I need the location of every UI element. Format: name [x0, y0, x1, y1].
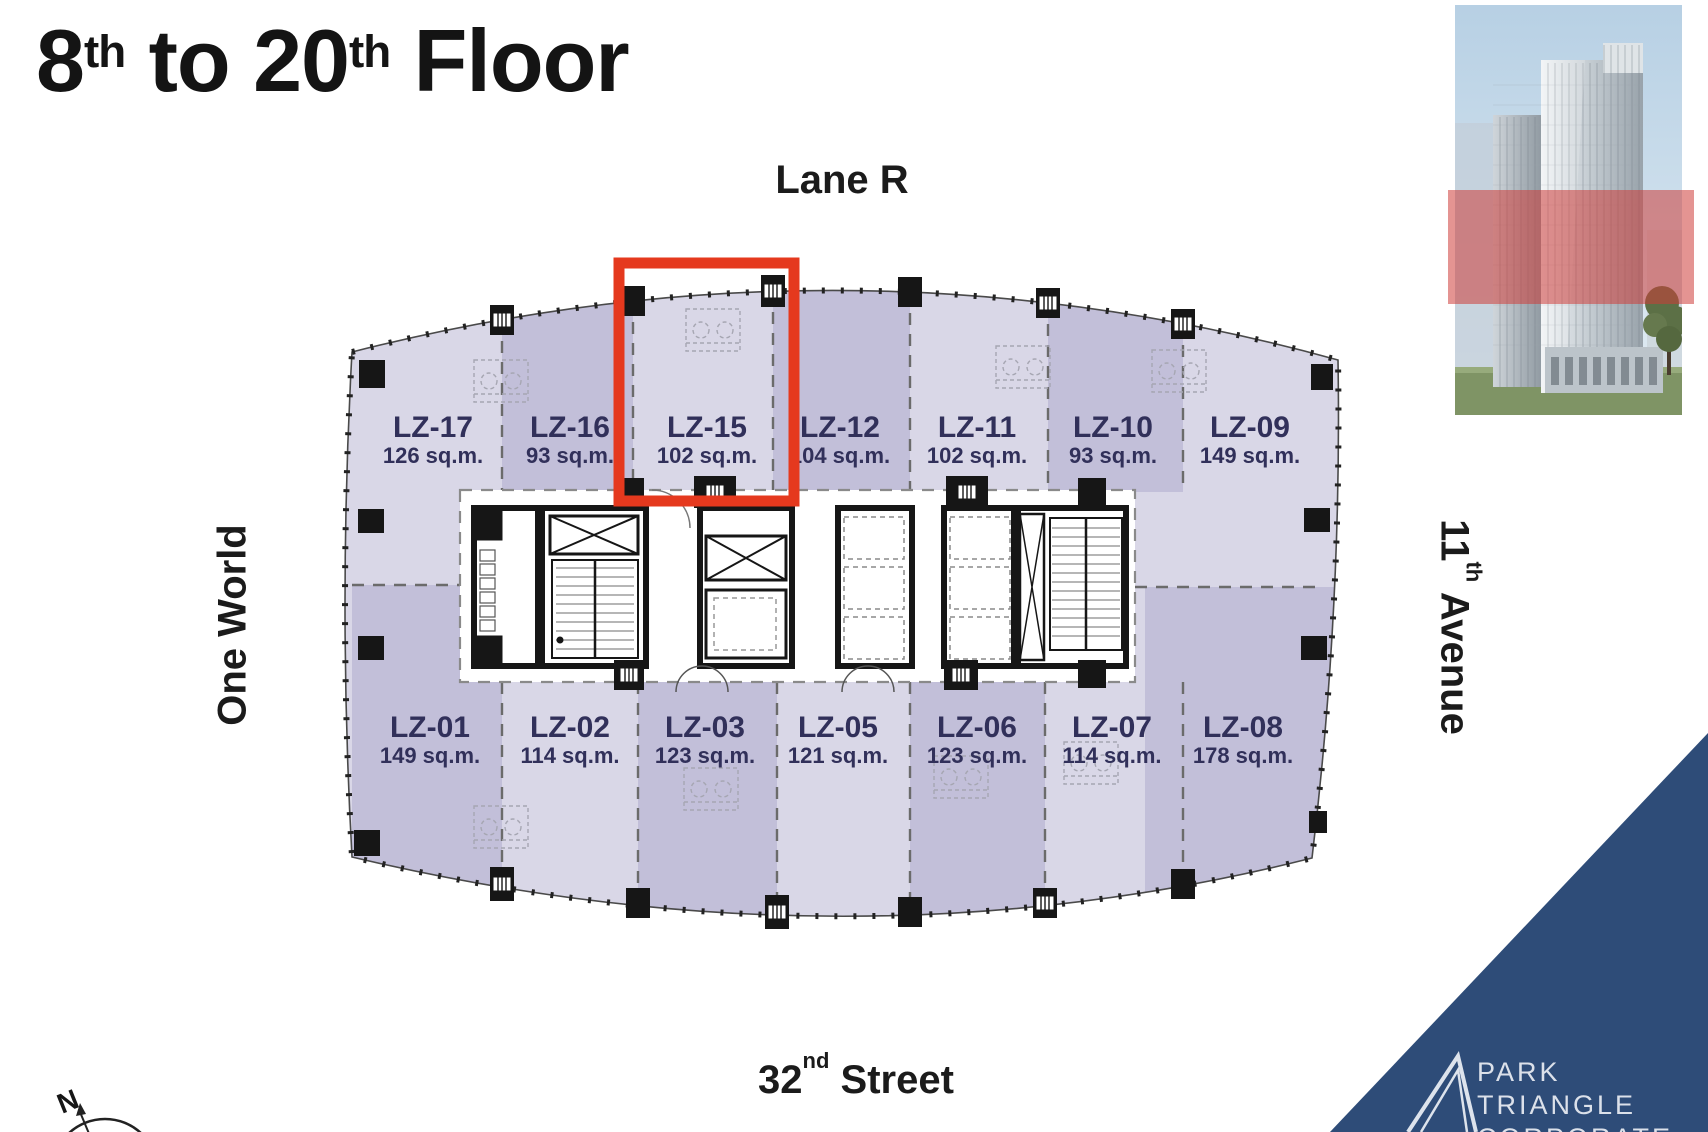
- unit-label-lz05: LZ-05: [798, 711, 878, 744]
- unit-area-lz08: 178 sq.m.: [1193, 743, 1293, 768]
- vent-grille-icon: [952, 668, 970, 682]
- unit-label-lz01: LZ-01: [390, 711, 470, 744]
- unit-area-lz12: 104 sq.m.: [790, 443, 890, 468]
- compass: N: [20, 1082, 200, 1132]
- unit-label-lz02: LZ-02: [530, 711, 610, 744]
- unit-area-lz16: 93 sq.m.: [526, 443, 614, 468]
- unit-area-lz03: 123 sq.m.: [655, 743, 755, 768]
- unit-label-lz16: LZ-16: [530, 411, 610, 444]
- floorplan-slide: 8th to 20th Floor Lane R One World 11th …: [0, 0, 1708, 1132]
- unit-label-lz08: LZ-08: [1203, 711, 1283, 744]
- unit-label-lz10: LZ-10: [1073, 411, 1153, 444]
- unit-area-lz15: 102 sq.m.: [657, 443, 757, 468]
- vent-grille-icon: [958, 485, 976, 499]
- unit-area-lz10: 93 sq.m.: [1069, 443, 1157, 468]
- vent-grille-icon: [620, 668, 638, 682]
- logo-line-2: TRIANGLE: [1477, 1089, 1673, 1122]
- building-core: [460, 476, 1135, 692]
- unit-area-lz11: 102 sq.m.: [927, 443, 1027, 468]
- unit-area-lz07: 114 sq.m.: [1062, 743, 1161, 768]
- compass-circle: [52, 1119, 158, 1132]
- unit-label-lz07: LZ-07: [1072, 711, 1152, 744]
- unit-area-lz02: 114 sq.m.: [520, 743, 619, 768]
- unit-area-lz06: 123 sq.m.: [927, 743, 1027, 768]
- park-triangle-logo-text: PARK TRIANGLE CORPORATE: [1477, 1056, 1673, 1132]
- unit-area-lz09: 149 sq.m.: [1200, 443, 1300, 468]
- floor-range-highlight-band: [1448, 190, 1694, 304]
- unit-label-lz11: LZ-11: [938, 411, 1016, 444]
- unit-label-lz12: LZ-12: [800, 411, 880, 444]
- unit-label-lz17: LZ-17: [393, 411, 473, 444]
- podium: [1545, 347, 1663, 393]
- unit-label-lz03: LZ-03: [665, 711, 745, 744]
- unit-label-lz06: LZ-06: [937, 711, 1017, 744]
- unit-label-lz09: LZ-09: [1210, 411, 1290, 444]
- unit-area-lz17: 126 sq.m.: [383, 443, 483, 468]
- logo-line-3: CORPORATE: [1477, 1122, 1673, 1132]
- unit-area-lz05: 121 sq.m.: [788, 743, 888, 768]
- compass-needle: [80, 1112, 105, 1132]
- tower-crown: [1603, 43, 1643, 73]
- logo-line-1: PARK: [1477, 1056, 1673, 1089]
- unit-area-lz01: 149 sq.m.: [380, 743, 480, 768]
- unit-label-lz15: LZ-15: [667, 411, 747, 444]
